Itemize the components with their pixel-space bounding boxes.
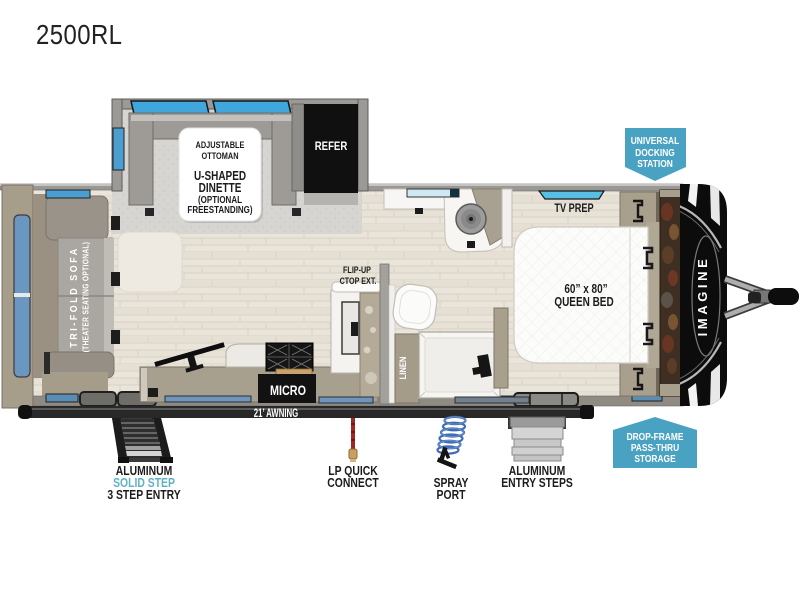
svg-text:OTTOMAN: OTTOMAN	[201, 150, 238, 161]
svg-text:FREESTANDING): FREESTANDING)	[187, 204, 252, 215]
svg-text:STORAGE: STORAGE	[634, 453, 675, 465]
svg-text:ADJUSTABLE: ADJUSTABLE	[196, 139, 245, 150]
svg-text:2500RL: 2500RL	[36, 21, 122, 51]
svg-text:STATION: STATION	[637, 158, 673, 170]
svg-text:21’ AWNING: 21’ AWNING	[254, 408, 299, 421]
svg-text:MICRO: MICRO	[270, 383, 306, 398]
svg-text:TV PREP: TV PREP	[554, 203, 593, 215]
svg-text:PORT: PORT	[437, 488, 467, 502]
svg-text:SOLID STEP: SOLID STEP	[113, 476, 175, 490]
svg-text:CTOP EXT.: CTOP EXT.	[340, 276, 377, 286]
svg-text:ENTRY STEPS: ENTRY STEPS	[501, 476, 573, 490]
svg-text:IMAGINE: IMAGINE	[695, 256, 710, 337]
svg-text:LINEN: LINEN	[397, 357, 408, 380]
svg-text:CONNECT: CONNECT	[327, 476, 379, 490]
svg-text:REFER: REFER	[315, 140, 348, 153]
svg-text:(THEATER SEATING OPTIONAL): (THEATER SEATING OPTIONAL)	[81, 241, 91, 352]
svg-text:TRI-FOLD SOFA: TRI-FOLD SOFA	[68, 246, 80, 348]
svg-text:QUEEN BED: QUEEN BED	[554, 296, 613, 309]
svg-text:UNIVERSAL: UNIVERSAL	[631, 135, 680, 147]
svg-text:FLIP-UP: FLIP-UP	[343, 265, 371, 275]
svg-text:60” x 80”: 60” x 80”	[564, 283, 607, 296]
